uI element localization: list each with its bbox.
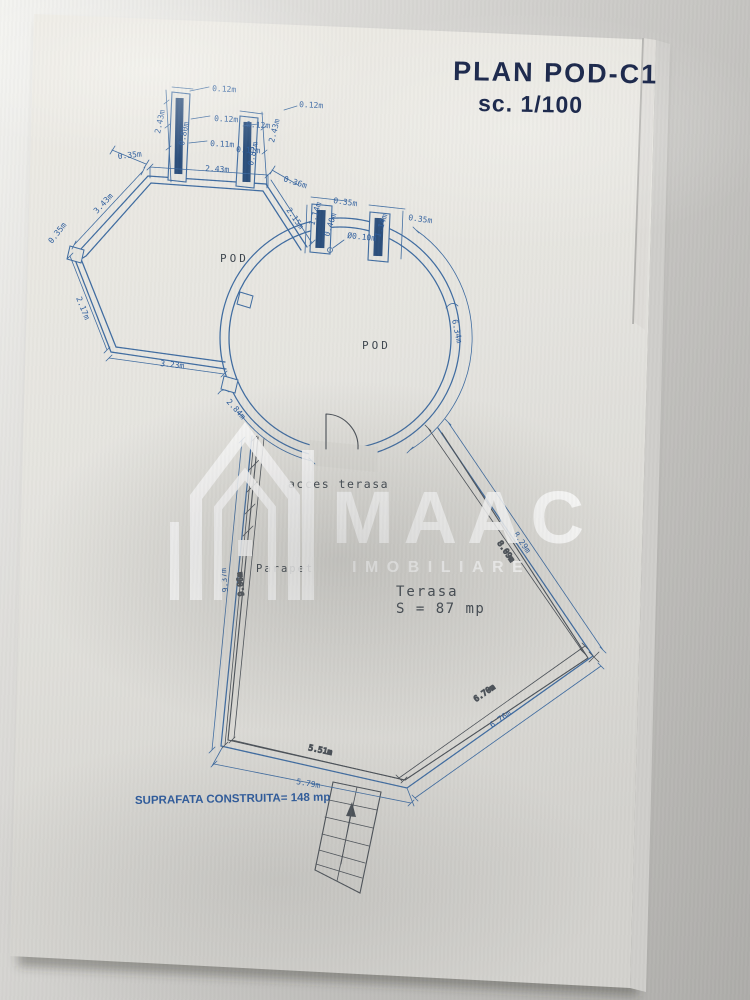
room1-label: POD — [220, 252, 249, 265]
dimension-label: 2.43m — [205, 164, 230, 174]
plan-title: PLAN POD-C1 — [453, 56, 659, 90]
room2-label: POD — [362, 339, 391, 352]
photographed-plan-document: 0.12m0.12m0.11m2.43m0.80m0.12m0.12m0.11m… — [0, 0, 750, 1000]
plan-scale: sc. 1/100 — [478, 90, 583, 118]
